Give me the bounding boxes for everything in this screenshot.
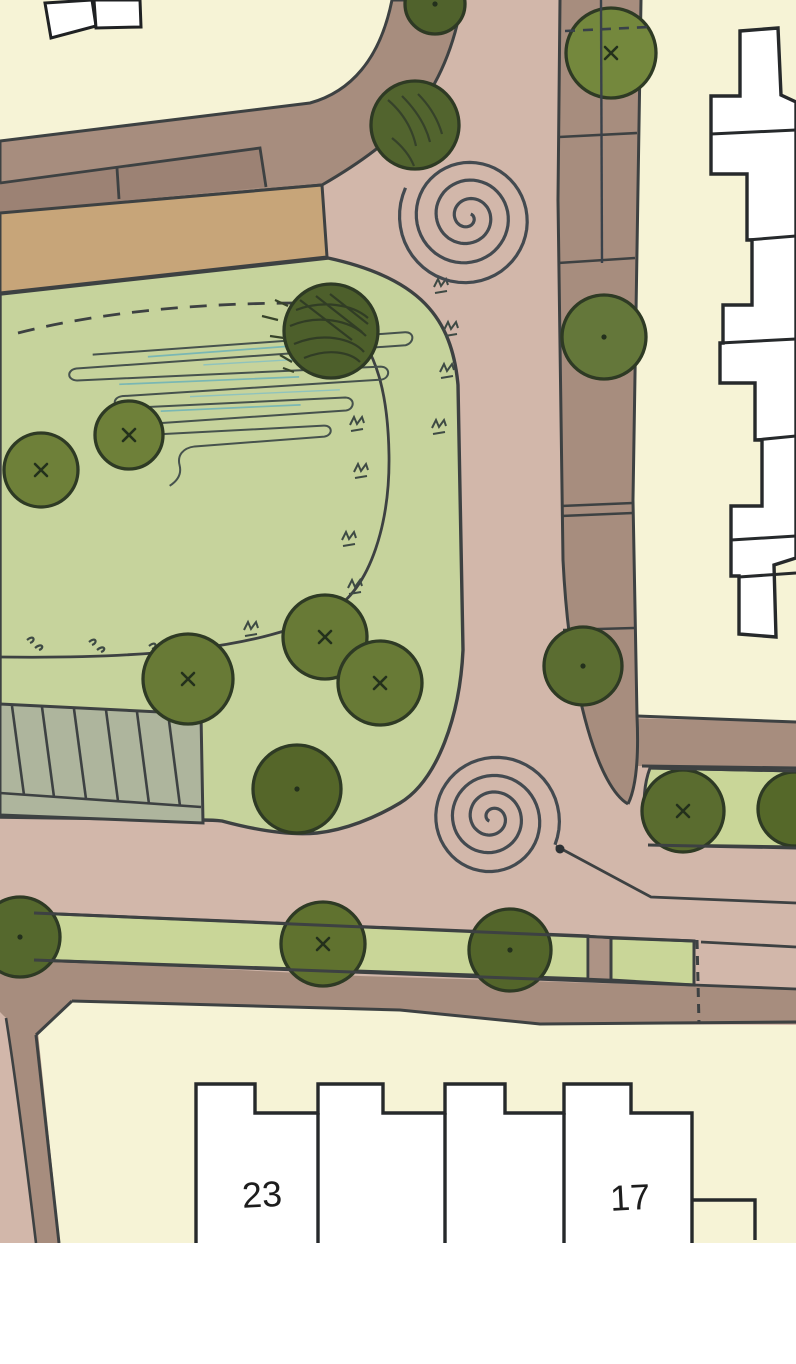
svg-text:17: 17 <box>609 1176 651 1219</box>
svg-text:23: 23 <box>241 1173 283 1216</box>
